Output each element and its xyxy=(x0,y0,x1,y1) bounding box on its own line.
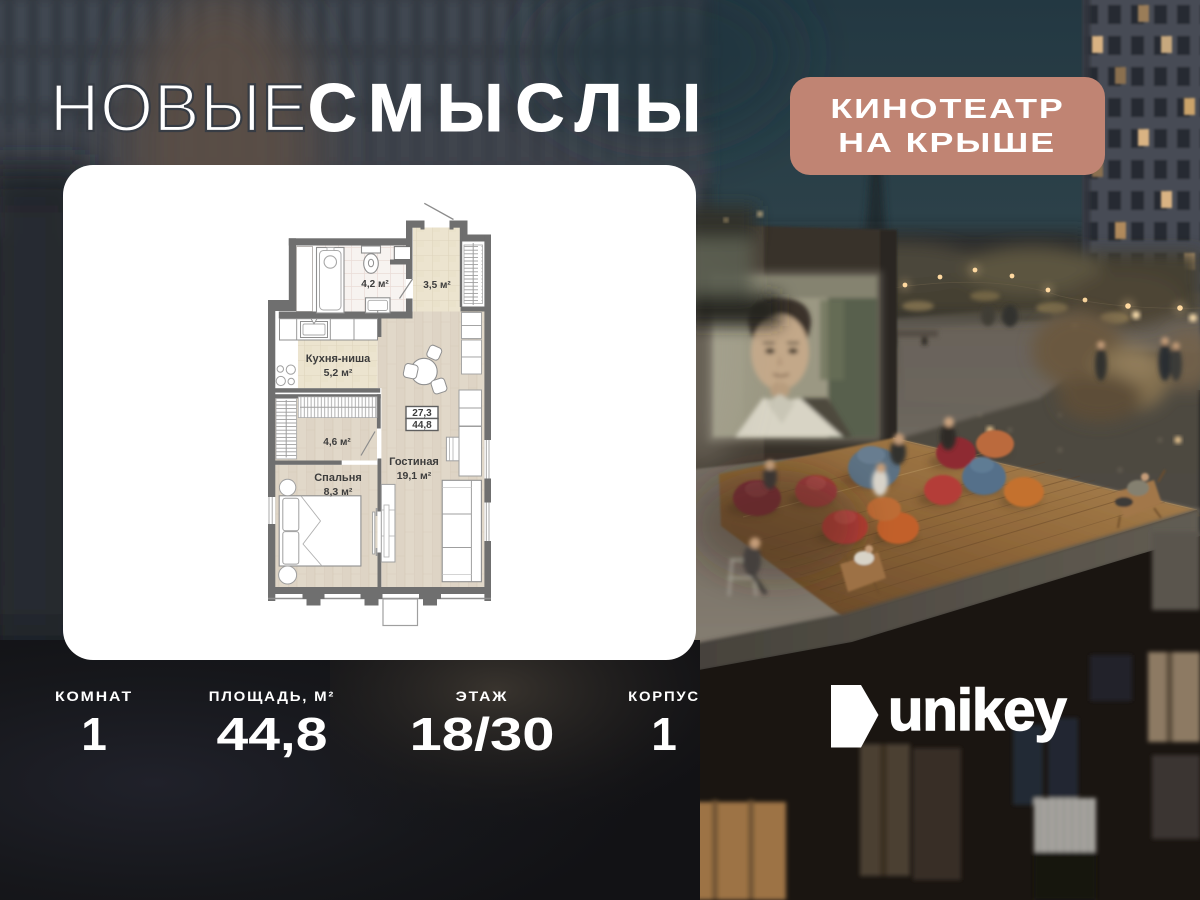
svg-text:4,2 м²: 4,2 м² xyxy=(361,279,389,290)
svg-text:4,6 м²: 4,6 м² xyxy=(323,437,351,448)
svg-text:44,8: 44,8 xyxy=(412,420,432,431)
svg-text:5,2 м²: 5,2 м² xyxy=(324,367,353,379)
svg-text:Спальня: Спальня xyxy=(314,472,362,484)
svg-text:19,1 м²: 19,1 м² xyxy=(397,470,432,482)
svg-text:27,3: 27,3 xyxy=(412,408,432,419)
svg-text:unikey: unikey xyxy=(888,682,1066,743)
svg-text:3,5 м²: 3,5 м² xyxy=(423,280,451,291)
svg-text:Гостиная: Гостиная xyxy=(389,456,439,468)
svg-text:8,3 м²: 8,3 м² xyxy=(324,486,353,498)
svg-text:Кухня-ниша: Кухня-ниша xyxy=(306,353,371,365)
